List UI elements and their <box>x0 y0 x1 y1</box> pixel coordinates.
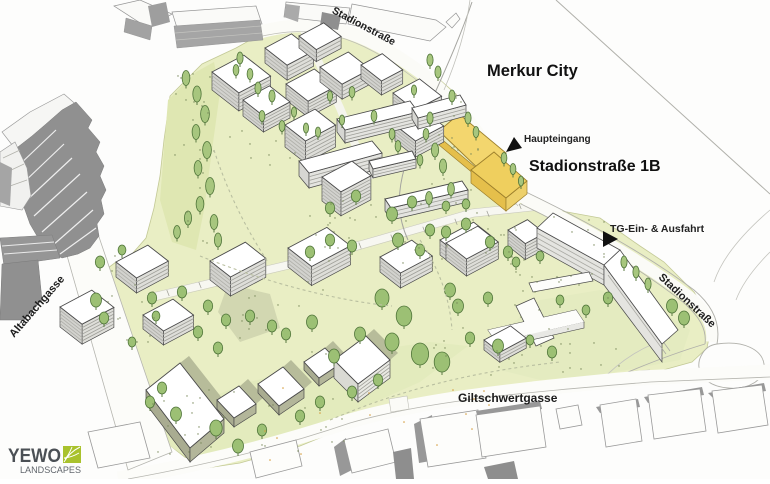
svg-text:TG-Ein- & Ausfahrt: TG-Ein- & Ausfahrt <box>610 223 705 235</box>
svg-text:Stadionstraße 1B: Stadionstraße 1B <box>529 158 661 175</box>
svg-text:YEWO: YEWO <box>8 445 61 467</box>
svg-text:LANDSCAPES: LANDSCAPES <box>20 465 81 476</box>
svg-text:Merkur City: Merkur City <box>487 62 579 80</box>
svg-text:Haupteingang: Haupteingang <box>524 134 591 145</box>
svg-text:Giltschwertgasse: Giltschwertgasse <box>458 391 558 405</box>
